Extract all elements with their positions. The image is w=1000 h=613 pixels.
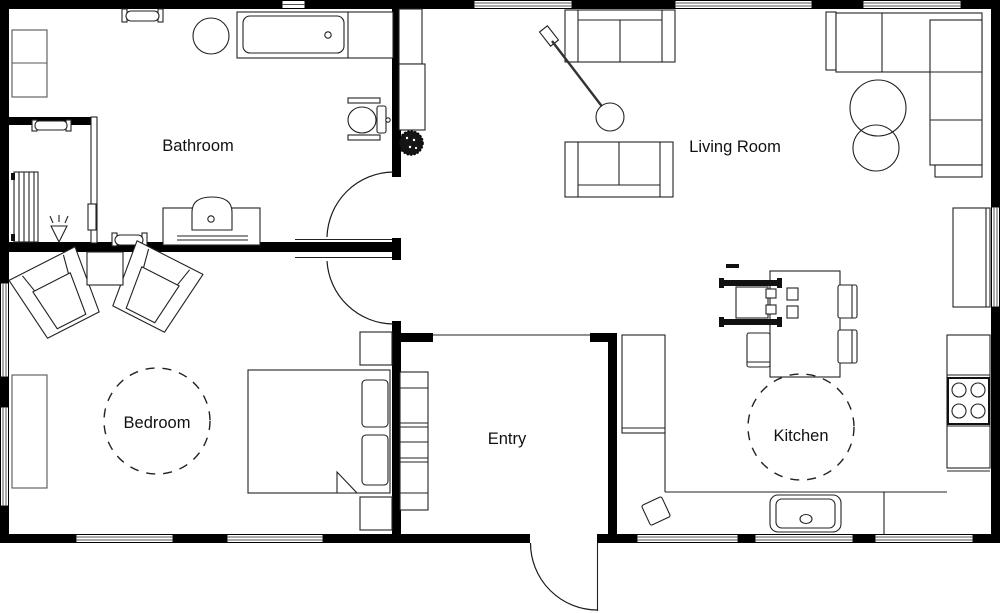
nesting-tables-icon [850,80,906,171]
round-table-icon [193,18,229,54]
seat-bracket-icon [787,288,798,300]
front-door-swing-icon [531,543,598,611]
window-icon [76,535,173,543]
wall-entry-top-left [392,333,433,342]
wall-center-post [392,238,401,260]
bedroom-furniture [9,241,392,530]
sink-vanity-icon [163,197,260,245]
upper-counter-icon [953,208,990,307]
window-icon [1,407,9,506]
sectional-sofa-icon [826,12,982,177]
wall-entry-right [608,333,617,543]
floor-plan-drawing: Bathroom Living Room Bedroom Entry Kitch… [0,0,1000,613]
nightstand-icon [360,332,392,365]
window-icon [474,1,572,9]
nightstand-icon [360,497,392,530]
dresser-icon [12,375,47,488]
window-icon [282,1,305,9]
closet-door-icon [88,204,96,230]
room-label-bathroom: Bathroom [162,137,234,155]
loveseat-icon [565,142,673,197]
window-icon [875,535,973,543]
window-icon [863,1,961,9]
towel-radiator-icon [122,9,163,22]
window-icon [675,1,812,9]
trash-bin-icon [641,496,670,525]
tall-cabinet-icon [622,335,665,433]
toilet-icon [348,98,390,140]
sofa-icon [565,10,675,62]
living-room-furniture [399,9,982,197]
towel-radiator-icon [32,120,71,131]
room-labels: Bathroom Living Room Bedroom Entry Kitch… [104,137,854,480]
window-icon [227,535,323,543]
storage-cabinet-icon [12,30,47,97]
stove-icon [948,378,989,424]
room-label-entry: Entry [488,430,527,448]
window-icon [755,535,853,543]
plant-icon [399,131,423,155]
shelving-unit-icon [400,372,428,510]
dining-chair-icon [838,285,857,318]
window-icon [1,283,9,377]
kitchen-furniture [622,208,990,534]
window-icon [992,207,1000,307]
bathtub-icon [237,12,393,58]
floor-plan: Bathroom Living Room Bedroom Entry Kitch… [0,0,1000,613]
double-bed-icon [248,370,390,493]
dining-chair-icon [838,330,857,363]
wall-lamp-icon [50,215,68,242]
room-label-living-room: Living Room [689,138,781,156]
side-table-icon [87,252,123,285]
window-icon [637,535,738,543]
radiator-icon [11,172,38,242]
room-label-kitchen: Kitchen [773,427,828,445]
entry-furniture [400,372,428,510]
closet-items [11,120,71,242]
dining-chair-icon [747,333,770,367]
shelf-column-icon [399,9,425,130]
room-label-bedroom: Bedroom [124,414,191,432]
seat-bracket-icon [787,306,798,318]
kitchen-sink-icon [770,495,841,532]
